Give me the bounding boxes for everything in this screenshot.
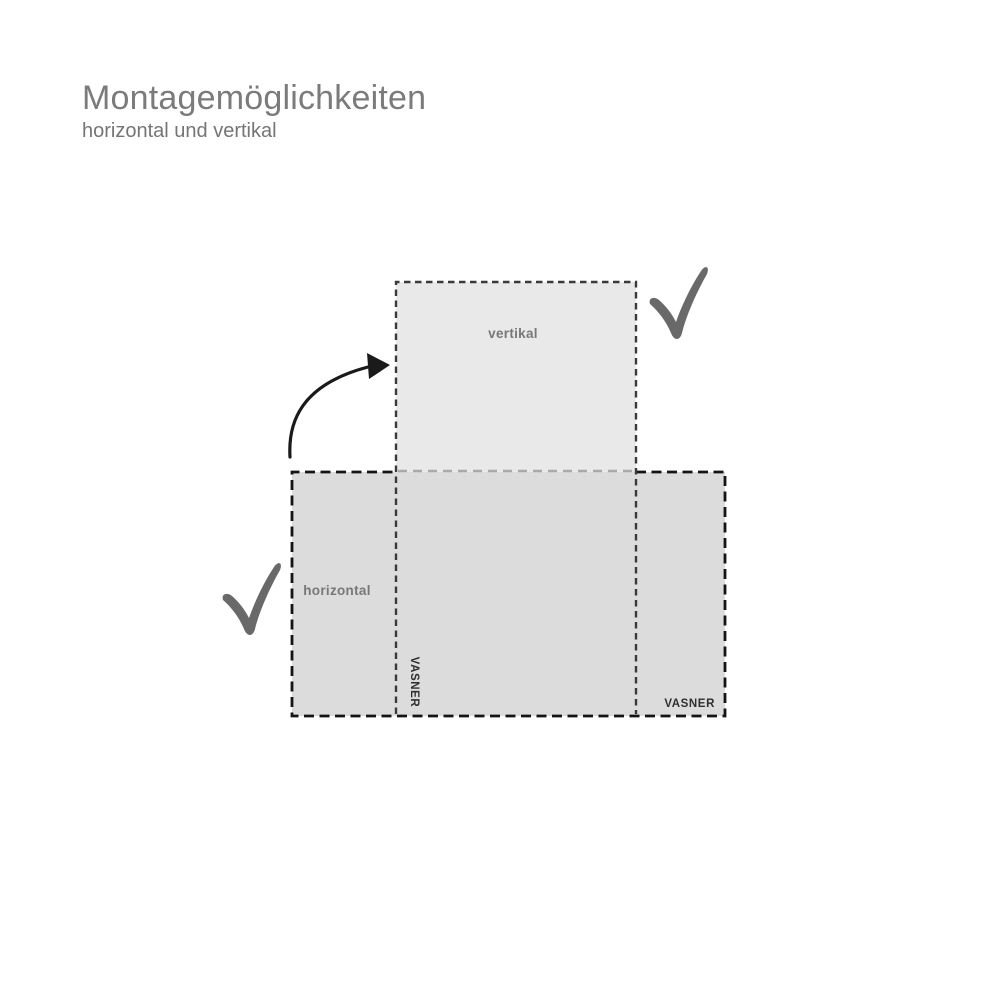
page: Montagemöglichkeiten horizontal und vert… (0, 0, 1000, 1000)
checkmark-icon-vertical (650, 267, 708, 339)
curved-arrow-icon (290, 353, 390, 457)
mounting-diagram: vertikal horizontal VASNER VASNER (0, 0, 1000, 1000)
vasner-logo-vertical: VASNER (408, 657, 420, 708)
arrow-head (367, 353, 390, 379)
vertical-panel-label: vertikal (488, 326, 538, 341)
checkmark-icon-horizontal (223, 563, 281, 635)
vasner-logo-horizontal: VASNER (664, 698, 715, 710)
horizontal-panel-label: horizontal (303, 583, 371, 598)
arrow-curve (290, 367, 368, 457)
